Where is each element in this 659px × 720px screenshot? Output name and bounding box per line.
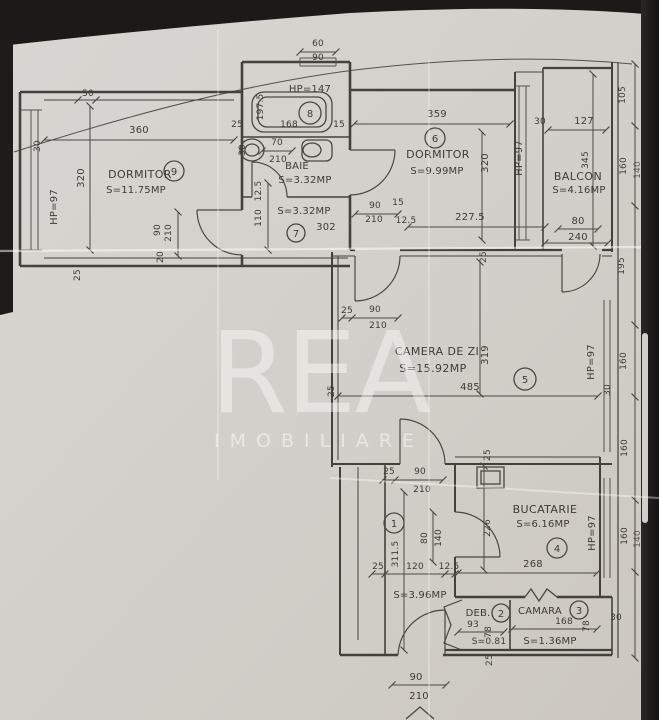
dimension-label: 319 [480,345,491,365]
room-area-camara: S=1.36MP [523,636,576,647]
dimension-label: HP=97 [514,140,525,176]
paper-left-shadow [0,38,13,315]
room-number: 9 [171,167,177,178]
dimension-label: 160 [620,439,630,457]
dimension-label: 60 [312,39,324,49]
dimension-label: 12.5 [254,181,264,202]
white-bar-artifact [642,333,648,523]
dimension-label: 90 [153,224,163,236]
room-name-camara: CAMARA [518,606,562,617]
dimension-label: 320 [76,168,87,188]
dimension-label: 485 [460,382,480,393]
dimension-label: 25 [383,467,395,477]
room-area-baie: S=3.32MP [278,175,331,186]
dimension-label: 80 [571,216,584,227]
room-name-balcon: BALCON [554,170,602,183]
room-number: 4 [554,544,560,555]
dimension-label: 50 [82,89,94,99]
dimension-label: HP=97 [587,515,598,551]
dimension-label: 210 [164,224,174,242]
dimension-label: 210 [365,215,383,225]
dimension-label: 30 [534,117,546,127]
room-number: 1 [391,519,397,530]
dimension-label: 78 [582,620,592,632]
dimension-label: 30 [238,144,248,156]
dimension-label: 93 [467,620,479,630]
dimension-label: 15 [392,198,404,208]
dimension-label: 240 [568,232,588,243]
dimension-label: 30 [610,613,622,623]
dimension-label: 197.5 [256,94,266,121]
dimension-label: 168 [555,617,573,627]
dimension-label: 127 [574,116,594,127]
floor-plan-photo: 50 30 360 320 HP=97 90 210 25 20 25 60 9… [0,0,659,720]
dimension-label: 345 [581,151,591,169]
floor-plan-canvas: 50 30 360 320 HP=97 90 210 25 20 25 60 9… [0,0,659,720]
room-name-dormitor6: DORMITOR [406,148,470,161]
dimension-label: HP=97 [49,189,60,225]
room-number: 2 [498,609,504,620]
dimension-label: 320 [480,153,491,173]
room-hp-camera8: HP=147 [289,84,331,95]
dimension-label: 30 [603,384,613,396]
room-area-balcon: S=4.16MP [552,185,605,196]
dimension-label: 195 [617,257,627,275]
room-number: 8 [307,109,313,120]
dimension-label: 70 [271,138,283,148]
dimension-label: 160 [619,157,629,175]
room-name-deb: DEB. [466,608,491,619]
room-area-hol1: S=3.96MP [393,590,446,601]
dimension-label: 90 [409,672,422,683]
dimension-label: 105 [618,86,628,104]
room-area-dormitor9: S=11.75MP [106,185,166,196]
room-area-hol7: S=3.32MP [277,206,330,217]
room-number: 3 [576,606,582,617]
dimension-label: 311.5 [391,541,401,568]
dimension-label: 140 [434,529,444,547]
room-name-bucatarie: BUCATARIE [513,503,578,516]
dimension-label: 210 [409,691,429,702]
room-number: 5 [522,375,528,386]
room-name-dormitor9: DORMITOR [108,168,172,181]
dimension-label: 160 [619,352,629,370]
room-area-deb: S=0.81 [472,637,507,647]
dimension-label: 15 [333,120,345,130]
dimension-label: 20 [156,251,166,263]
dimension-label: 12.5 [396,216,417,226]
room-name-baie: BAIE [285,161,309,172]
dimension-label: 226 [483,519,493,537]
dimension-label: 227.5 [455,212,485,223]
dimension-label: 90 [414,467,426,477]
dimension-label: 90 [369,201,381,211]
dimension-label: 25 [372,562,384,572]
dimension-label: 120 [406,562,424,572]
dimension-label: 90 [312,53,324,63]
watermark-title: REA [210,309,431,439]
dimension-label: 360 [129,125,149,136]
dimension-label: 359 [427,109,447,120]
dimension-label: 110 [254,209,264,227]
room-number: 6 [432,134,438,145]
room-area-dormitor6: S=9.99MP [410,166,463,177]
dimension-label: 268 [523,559,543,570]
room-area-bucatarie: S=6.16MP [516,519,569,530]
dimension-label: 25 [479,251,489,263]
watermark-subtitle: IMOBILIARE [214,430,424,452]
room-length-hol7: 302 [316,222,336,233]
dimension-label: 160 [620,527,630,545]
room-number: 7 [293,229,299,240]
dimension-label: 25 [483,449,493,461]
dimension-label: 30 [33,140,43,152]
dimension-label: HP=97 [586,344,597,380]
dimension-label: 25 [231,120,243,130]
dimension-label: 25 [485,654,495,666]
dimension-label: 12.5 [439,562,460,572]
dimension-label: 25 [73,269,83,281]
dimension-label: 168 [280,120,298,130]
watermark: REA IMOBILIARE [210,309,431,452]
